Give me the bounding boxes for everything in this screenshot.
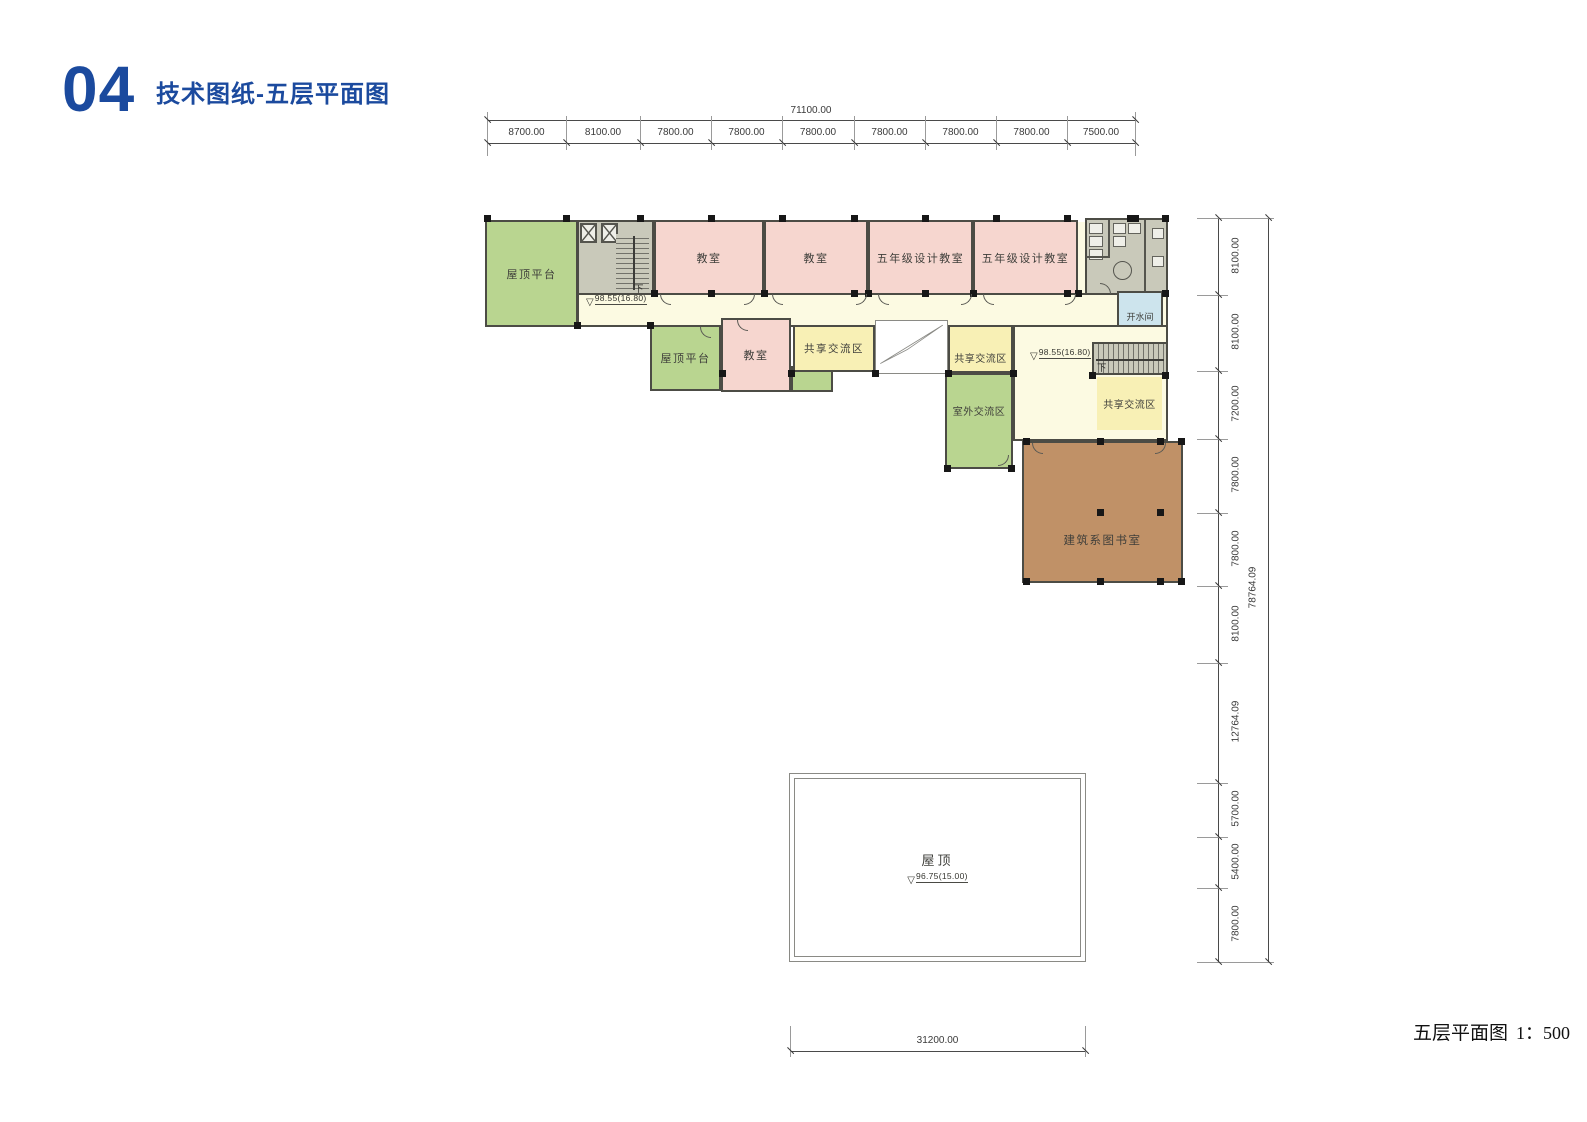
dim-label: 7800.00 — [992, 127, 1072, 138]
column-marker — [944, 465, 951, 472]
room-classroom-2: 教室 — [764, 220, 868, 295]
dim-extension-line — [1197, 295, 1228, 296]
dim-extension-line — [1197, 888, 1228, 889]
toilet-stall-icon — [1089, 249, 1103, 260]
toilet-stall-icon — [1089, 236, 1103, 247]
dim-extension-line — [1197, 513, 1228, 514]
dim-label: 8100.00 — [563, 127, 643, 138]
skylight-void — [875, 320, 948, 374]
column-marker — [708, 290, 715, 297]
column-marker — [1097, 509, 1104, 516]
column-marker — [719, 370, 726, 377]
dim-extension-line — [1197, 663, 1228, 664]
wc-fixture-icon — [1113, 261, 1132, 280]
top-dim-total-label: 71100.00 — [487, 105, 1135, 116]
column-marker — [1127, 215, 1134, 222]
column-marker — [1097, 438, 1104, 445]
roof-block-inner: 屋顶 ▽ 96.75(15.00) — [794, 778, 1081, 957]
column-marker — [922, 215, 929, 222]
column-marker — [563, 215, 570, 222]
room-label: 屋顶平台 — [507, 266, 557, 282]
toilet-wall — [1086, 256, 1110, 258]
dim-label: 7800.00 — [1231, 435, 1242, 515]
room-label: 教室 — [697, 250, 722, 266]
room-design-classroom-1: 五年级设计教室 — [868, 220, 973, 295]
page-title: 技术图纸-五层平面图 — [156, 74, 390, 109]
room-label: 室外交流区 — [953, 403, 1006, 418]
level-value: 98.55(16.80) — [1039, 347, 1091, 359]
dim-label: 7800.00 — [1231, 508, 1242, 588]
column-marker — [1097, 578, 1104, 585]
column-marker — [647, 322, 654, 329]
room-label: 教室 — [804, 250, 829, 266]
elevator-icon — [580, 223, 597, 243]
column-marker — [1178, 578, 1185, 585]
column-marker — [851, 215, 858, 222]
column-marker — [761, 290, 768, 297]
slide-floor-plan: 04 技术图纸-五层平面图 屋顶平台 下 教室 教室 五年级设计教室 五年级设计… — [0, 0, 1587, 1122]
column-marker — [872, 370, 879, 377]
column-marker — [788, 370, 795, 377]
dim-extension-line — [1197, 439, 1228, 440]
room-shared-area-2: 共享交流区 — [948, 325, 1013, 373]
right-dim-total-line — [1268, 218, 1269, 962]
caption-scale: 1：500 — [1516, 1023, 1570, 1043]
column-marker — [945, 370, 952, 377]
dim-label: 7800.00 — [636, 127, 716, 138]
column-marker — [779, 215, 786, 222]
column-marker — [1089, 372, 1096, 379]
room-roof-terrace-1: 屋顶平台 — [485, 220, 578, 327]
room-label: 开水间 — [1126, 310, 1153, 323]
column-marker — [1064, 215, 1071, 222]
column-marker — [922, 290, 929, 297]
top-dim-segment-line — [487, 143, 1135, 144]
dim-label: 8100.00 — [1231, 215, 1242, 295]
caption-title: 五层平面图 — [1413, 1023, 1508, 1044]
room-label: 屋顶 — [921, 850, 953, 869]
room-label: 教室 — [744, 347, 769, 363]
bottom-dim-label: 31200.00 — [790, 1035, 1085, 1046]
level-marker-right: ▽ 98.55(16.80) — [1030, 347, 1091, 362]
level-symbol-icon: ▽ — [907, 876, 915, 886]
level-symbol-icon: ▽ — [586, 298, 594, 308]
column-marker — [651, 290, 658, 297]
top-dim-total-line — [487, 120, 1135, 121]
skylight-lines — [876, 321, 947, 373]
dim-extension-line — [1197, 837, 1228, 838]
column-marker — [708, 215, 715, 222]
room-label: 共享交流区 — [1103, 396, 1156, 411]
room-design-classroom-2: 五年级设计教室 — [973, 220, 1078, 295]
dim-extension-line — [1197, 586, 1228, 587]
column-marker — [1162, 215, 1169, 222]
dim-label: 7800.00 — [850, 127, 930, 138]
drawing-caption: 五层平面图1：500 — [1370, 1018, 1570, 1045]
toilet-wall — [1108, 220, 1110, 258]
column-marker — [1157, 578, 1164, 585]
room-label: 屋顶平台 — [661, 350, 711, 366]
room-classroom-3: 教室 — [721, 318, 791, 392]
toilet-stall-icon — [1089, 223, 1103, 234]
toilet-stall-icon — [1128, 223, 1141, 234]
right-dim-total-label: 78764.09 — [1248, 543, 1259, 633]
dim-label: 8100.00 — [1231, 292, 1242, 372]
stair-icon — [616, 234, 649, 292]
dim-label: 7800.00 — [707, 127, 787, 138]
toilet-wall — [1144, 220, 1146, 293]
level-symbol-icon: ▽ — [1030, 352, 1038, 362]
dim-label: 8700.00 — [487, 127, 567, 138]
level-marker-left: ▽ 98.55(16.80) — [586, 293, 647, 308]
dim-label: 7500.00 — [1061, 127, 1141, 138]
column-marker — [637, 215, 644, 222]
column-marker — [484, 215, 491, 222]
dim-extension-line — [1197, 371, 1228, 372]
room-label: 共享交流区 — [804, 341, 864, 356]
stair-down-label: 下 — [1097, 360, 1107, 374]
column-marker — [1008, 465, 1015, 472]
dim-label: 7800.00 — [921, 127, 1001, 138]
room-label: 五年级设计教室 — [982, 250, 1070, 266]
dim-label: 7200.00 — [1231, 364, 1242, 444]
column-marker — [1023, 578, 1030, 585]
column-marker — [1010, 370, 1017, 377]
column-marker — [1162, 372, 1169, 379]
dim-label: 7800.00 — [778, 127, 858, 138]
dim-label: 12764.09 — [1231, 682, 1242, 762]
level-marker-roof: ▽ 96.75(15.00) — [907, 871, 968, 886]
column-marker — [1162, 290, 1169, 297]
right-dim-segment-line — [1218, 218, 1219, 962]
dim-label: 7800.00 — [1231, 884, 1242, 964]
column-marker — [1023, 438, 1030, 445]
level-value: 96.75(15.00) — [916, 871, 968, 883]
room-label: 共享交流区 — [954, 350, 1007, 365]
toilet-stall-icon — [1113, 236, 1126, 247]
column-marker — [993, 215, 1000, 222]
bottom-dim-line — [790, 1051, 1085, 1052]
room-classroom-1: 教室 — [654, 220, 764, 295]
room-shared-area-3: 共享交流区 — [1097, 377, 1162, 430]
column-marker — [1157, 509, 1164, 516]
column-marker — [1178, 438, 1185, 445]
room-shared-area-1: 共享交流区 — [793, 325, 875, 372]
toilet-stall-icon — [1152, 228, 1164, 239]
room-label: 建筑系图书室 — [1064, 532, 1142, 548]
column-marker — [574, 322, 581, 329]
dim-label: 8100.00 — [1231, 583, 1242, 663]
dim-extension-line — [1197, 783, 1228, 784]
room-label: 五年级设计教室 — [877, 250, 965, 266]
toilet-stall-icon — [1152, 256, 1164, 267]
level-value: 98.55(16.80) — [595, 293, 647, 305]
section-number: 04 — [62, 52, 135, 126]
roof-block: 屋顶 ▽ 96.75(15.00) — [789, 773, 1086, 962]
toilet-stall-icon — [1113, 223, 1126, 234]
